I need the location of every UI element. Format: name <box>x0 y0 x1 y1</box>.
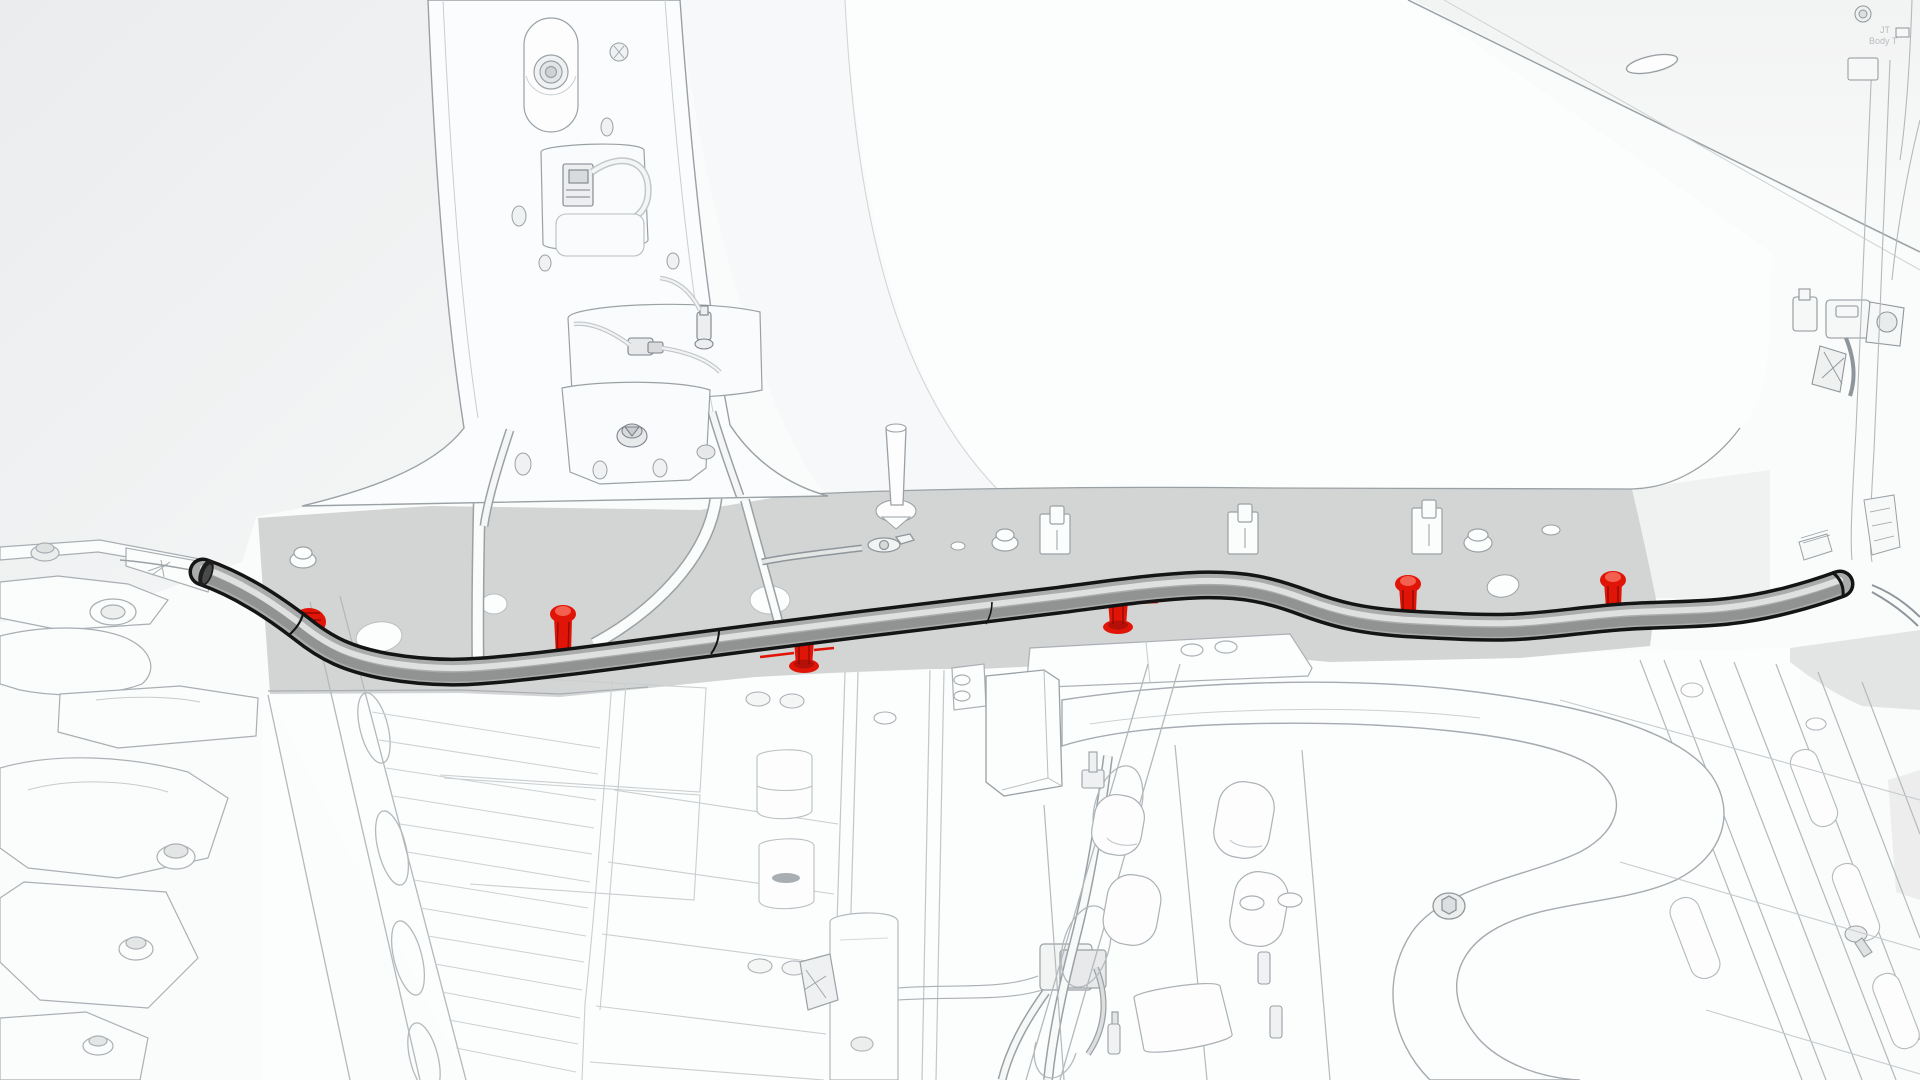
svg-text:Body T: Body T <box>1869 36 1898 46</box>
svg-text:JT: JT <box>1880 25 1891 35</box>
